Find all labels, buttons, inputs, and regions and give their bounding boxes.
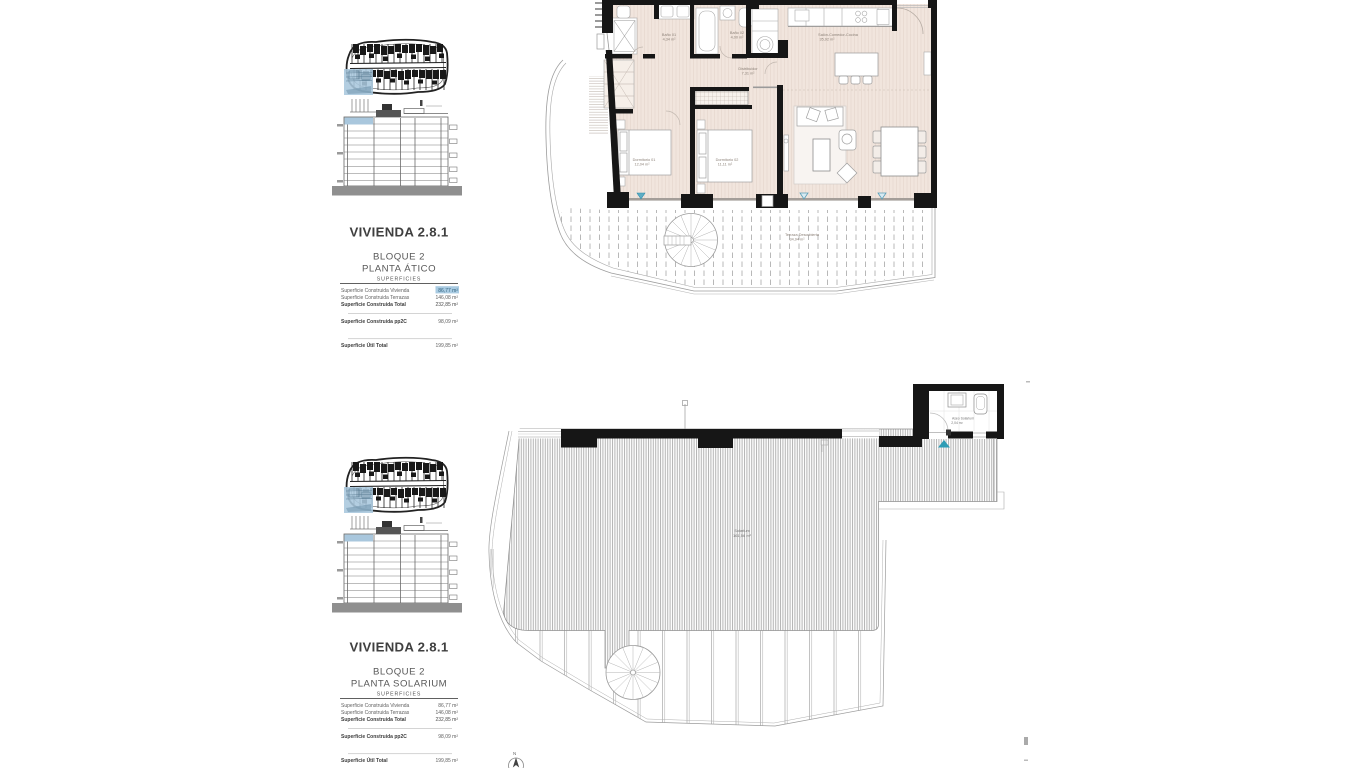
svg-text:199,85 m²: 199,85 m² <box>435 758 458 764</box>
svg-text:232,85 m²: 232,85 m² <box>435 717 458 723</box>
svg-text:Superficie Construida Vivienda: Superficie Construida Vivienda <box>341 288 410 294</box>
svg-text:Dormitorio 02: Dormitorio 02 <box>716 158 739 162</box>
svg-text:Superficie Construida pp2C: Superficie Construida pp2C <box>341 734 407 740</box>
svg-text:PLANTA SOLARIUM: PLANTA SOLARIUM <box>351 679 447 690</box>
svg-text:PLANTA ÁTICO: PLANTA ÁTICO <box>362 264 436 275</box>
svg-text:BLOQUE 2: BLOQUE 2 <box>373 667 425 678</box>
svg-text:12,04 m²: 12,04 m² <box>635 163 651 167</box>
svg-text:Baño 02: Baño 02 <box>730 31 744 35</box>
svg-text:Distribuidor: Distribuidor <box>738 67 758 71</box>
svg-text:4,00 m²: 4,00 m² <box>731 36 745 40</box>
svg-text:98,09 m²: 98,09 m² <box>438 319 458 325</box>
svg-text:34,94 m²: 34,94 m² <box>790 238 806 242</box>
svg-text:VIVIENDA 2.8.1: VIVIENDA 2.8.1 <box>350 640 449 655</box>
svg-text:Superficie Útil Total: Superficie Útil Total <box>341 342 388 349</box>
svg-text:4,34 m²: 4,34 m² <box>663 38 677 42</box>
svg-text:146,08 m²: 146,08 m² <box>435 710 458 716</box>
svg-text:86,77 m²: 86,77 m² <box>438 703 458 709</box>
svg-text:Dormitorio 01: Dormitorio 01 <box>633 158 656 162</box>
svg-text:N: N <box>513 751 516 756</box>
svg-text:Baño 01: Baño 01 <box>662 33 676 37</box>
svg-text:SUPERFICIES: SUPERFICIES <box>377 277 422 283</box>
svg-text:7,31 m²: 7,31 m² <box>742 72 756 76</box>
svg-text:Superficie Construida Total: Superficie Construida Total <box>341 717 407 723</box>
svg-text:Superficie Construida Terrazas: Superficie Construida Terrazas <box>341 710 410 716</box>
svg-text:VIVIENDA 2.8.1: VIVIENDA 2.8.1 <box>350 225 449 240</box>
svg-text:11,11 m²: 11,11 m² <box>718 163 733 167</box>
svg-text:Superficie Construida Total: Superficie Construida Total <box>341 302 407 308</box>
svg-text:161,56 m²: 161,56 m² <box>733 533 752 538</box>
svg-text:Terraza Descubierta: Terraza Descubierta <box>785 233 820 237</box>
svg-text:Salón-Comedor-Cocina: Salón-Comedor-Cocina <box>818 33 859 37</box>
svg-text:Superficie Construida Vivienda: Superficie Construida Vivienda <box>341 703 410 709</box>
svg-text:232,85 m²: 232,85 m² <box>435 302 458 308</box>
svg-text:Superficie Construida Terrazas: Superficie Construida Terrazas <box>341 295 410 301</box>
svg-text:35,92 m²: 35,92 m² <box>820 38 836 42</box>
svg-text:Superficie Útil Total: Superficie Útil Total <box>341 757 388 764</box>
svg-text:146,08 m²: 146,08 m² <box>435 295 458 301</box>
svg-text:2,04 m²: 2,04 m² <box>951 421 963 425</box>
svg-text:199,85 m²: 199,85 m² <box>435 343 458 349</box>
svg-text:Superficie Construida pp2C: Superficie Construida pp2C <box>341 319 407 325</box>
svg-text:98,09 m²: 98,09 m² <box>438 734 458 740</box>
svg-text:BLOQUE 2: BLOQUE 2 <box>373 252 425 263</box>
svg-text:SUPERFICIES: SUPERFICIES <box>377 692 422 698</box>
svg-text:86,77 m²: 86,77 m² <box>438 288 458 294</box>
